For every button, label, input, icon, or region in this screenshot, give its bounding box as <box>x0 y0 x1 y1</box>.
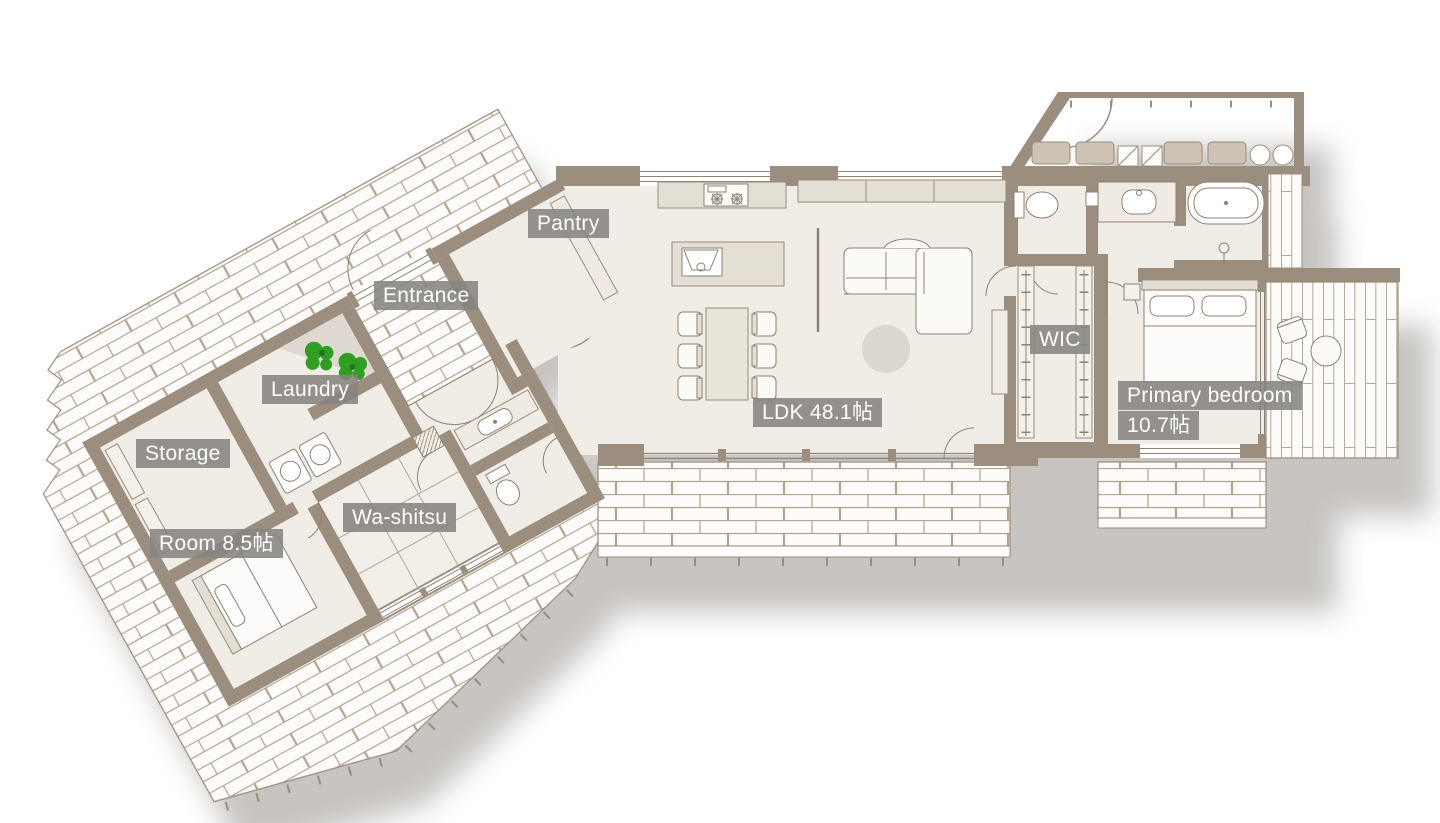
ac-unit <box>1076 142 1114 164</box>
slat-strip <box>1268 174 1302 268</box>
label-storage: Storage <box>136 439 230 468</box>
tank <box>1250 145 1270 165</box>
label-washitsu: Wa-shitsu <box>343 503 456 532</box>
label-laundry: Laundry <box>262 375 358 404</box>
sink <box>682 248 722 276</box>
sideboard <box>798 180 1006 202</box>
washbasin <box>1098 182 1176 222</box>
nightstand <box>1124 284 1140 300</box>
ac-unit <box>1208 142 1246 164</box>
kitchen-counter <box>658 182 786 208</box>
label-entrance: Entrance <box>374 281 478 310</box>
south-terrace <box>598 462 1010 562</box>
tv-board <box>992 310 1008 394</box>
bedroom-south-window <box>1140 444 1240 458</box>
pillow <box>1150 296 1194 316</box>
label-wic: WIC <box>1030 325 1090 354</box>
deck-table <box>1311 336 1341 366</box>
kitchen-island <box>672 242 784 286</box>
floor-plan-page: Pantry Entrance Laundry Storage Room 8.5… <box>0 0 1440 823</box>
round-rug <box>862 325 910 373</box>
pillow <box>1202 296 1246 316</box>
fence <box>1058 92 1298 98</box>
ac-unit <box>1032 142 1070 164</box>
tank <box>1273 145 1293 165</box>
deck <box>1262 268 1400 458</box>
label-primary-bedroom-size: 10.7帖 <box>1118 411 1199 440</box>
ac-unit <box>1164 142 1202 164</box>
bedroom-terrace <box>1098 462 1266 528</box>
label-ldk: LDK 48.1帖 <box>753 398 882 427</box>
label-room: Room 8.5帖 <box>150 529 283 558</box>
label-primary-bedroom: Primary bedroom <box>1118 381 1302 410</box>
label-pantry: Pantry <box>528 209 609 238</box>
floor-plan-drawing <box>0 0 1440 823</box>
primary-bed <box>1124 280 1258 382</box>
service-yard <box>1008 92 1304 172</box>
dining-table <box>678 308 776 400</box>
